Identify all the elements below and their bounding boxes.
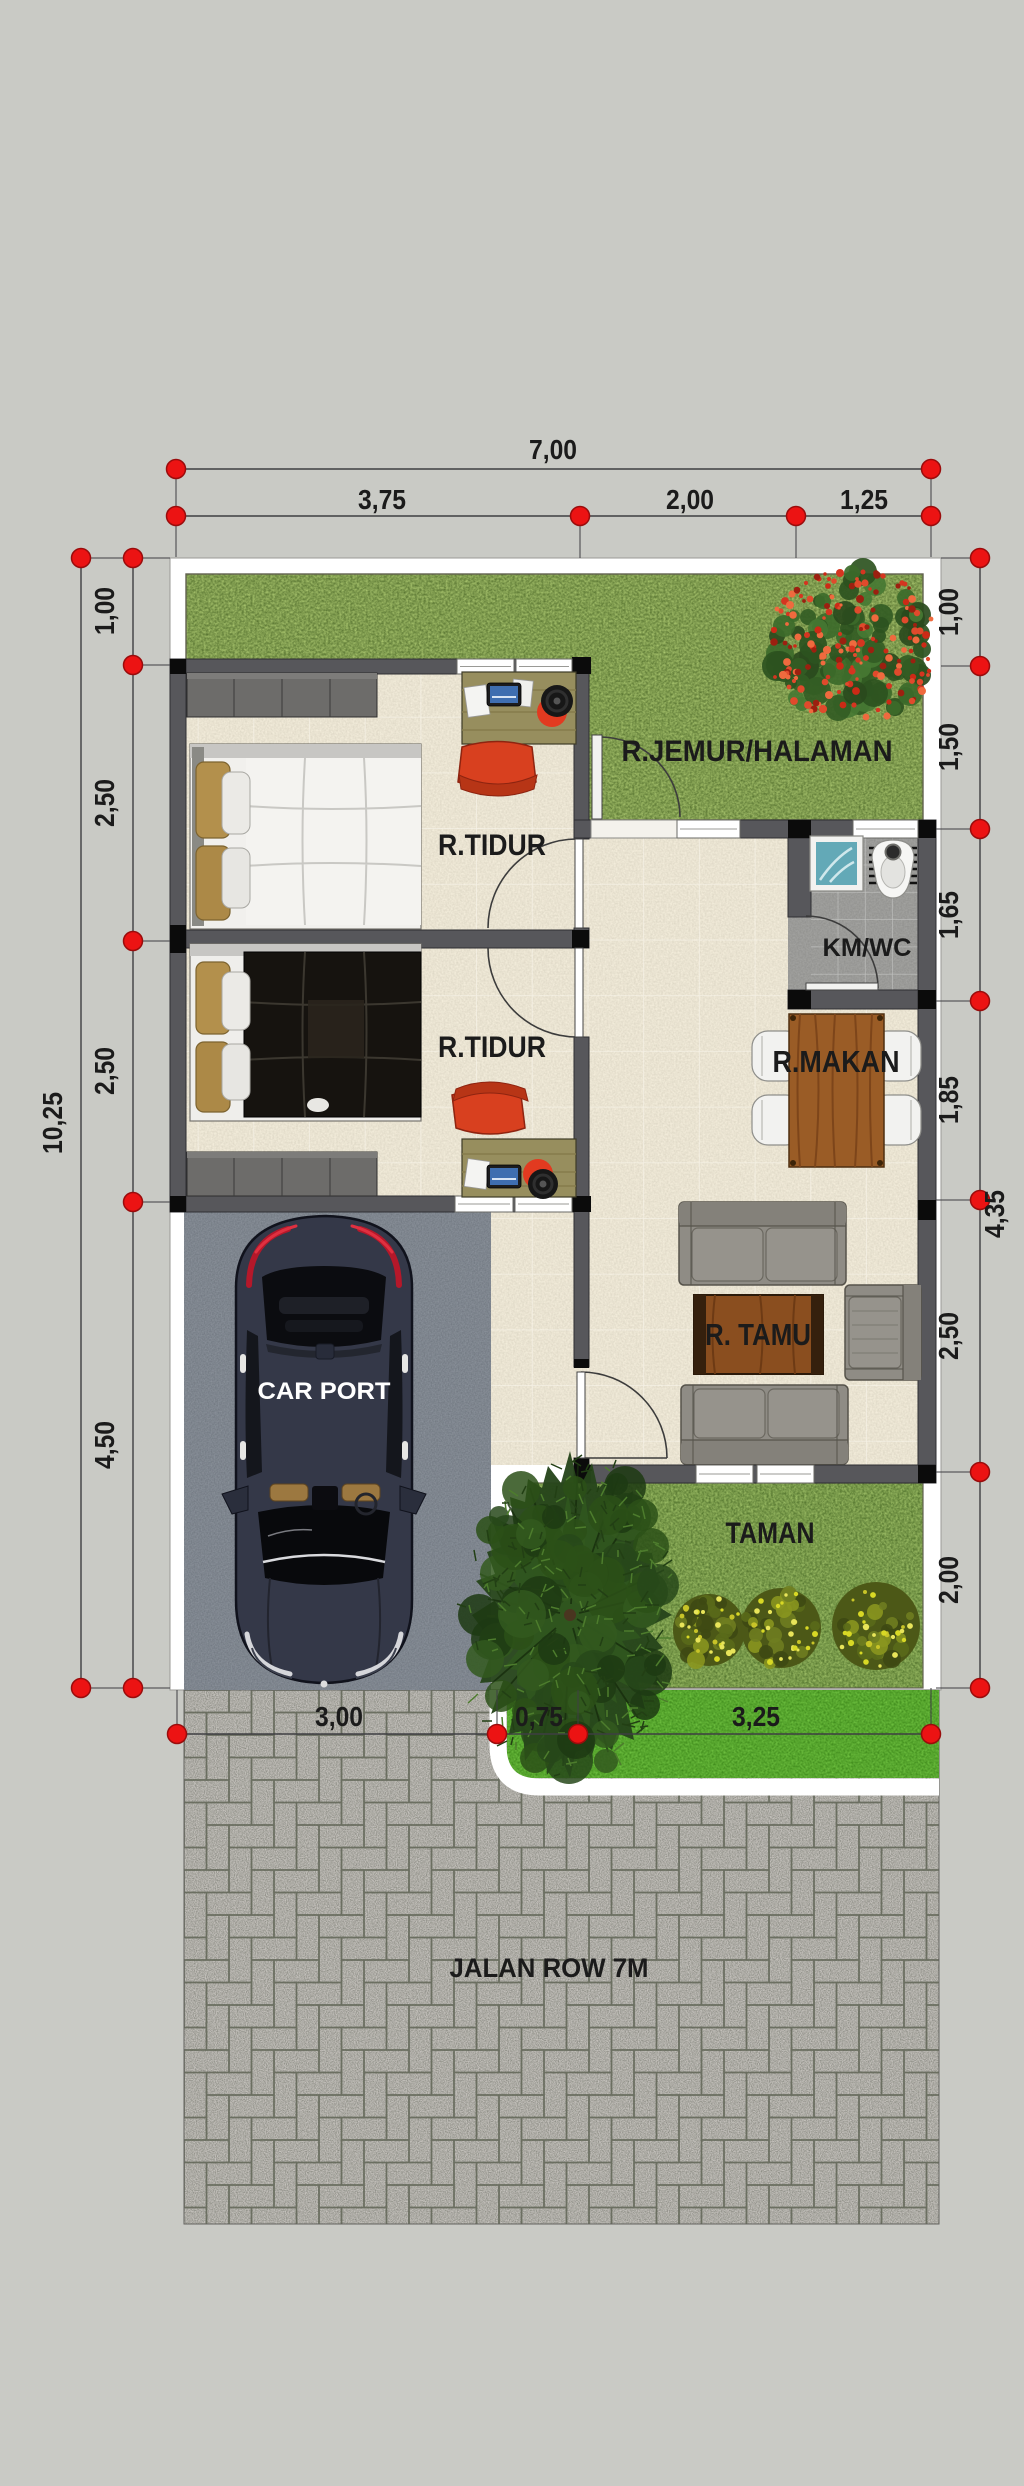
svg-text:CAR PORT: CAR PORT: [258, 1378, 391, 1405]
svg-text:4,35: 4,35: [979, 1190, 1010, 1238]
svg-text:JALAN ROW 7M: JALAN ROW 7M: [450, 1953, 649, 1983]
svg-text:R.TIDUR: R.TIDUR: [438, 829, 546, 862]
svg-text:KM/WC: KM/WC: [823, 934, 912, 962]
svg-text:2,50: 2,50: [89, 1047, 120, 1095]
svg-text:R.TIDUR: R.TIDUR: [438, 1031, 546, 1064]
svg-text:R. TAMU: R. TAMU: [705, 1317, 811, 1352]
svg-text:3,25: 3,25: [732, 1701, 780, 1732]
svg-text:2,50: 2,50: [933, 1312, 964, 1360]
svg-text:1,85: 1,85: [933, 1076, 964, 1124]
svg-text:1,00: 1,00: [933, 588, 964, 636]
svg-text:TAMAN: TAMAN: [726, 1517, 815, 1550]
svg-text:1,25: 1,25: [840, 484, 888, 515]
svg-text:R.MAKAN: R.MAKAN: [773, 1044, 900, 1079]
svg-text:2,00: 2,00: [933, 1556, 964, 1604]
svg-text:2,50: 2,50: [89, 779, 120, 827]
svg-text:1,65: 1,65: [933, 891, 964, 939]
svg-text:7,00: 7,00: [529, 434, 577, 465]
svg-text:3,00: 3,00: [315, 1701, 363, 1732]
svg-text:2,00: 2,00: [666, 484, 714, 515]
svg-text:0,75: 0,75: [515, 1701, 563, 1732]
svg-text:1,50: 1,50: [933, 723, 964, 771]
svg-text:10,25: 10,25: [37, 1092, 68, 1154]
svg-text:3,75: 3,75: [358, 484, 406, 515]
svg-text:1,00: 1,00: [89, 587, 120, 635]
svg-text:4,50: 4,50: [89, 1421, 120, 1469]
svg-text:R.JEMUR/HALAMAN: R.JEMUR/HALAMAN: [622, 735, 893, 768]
